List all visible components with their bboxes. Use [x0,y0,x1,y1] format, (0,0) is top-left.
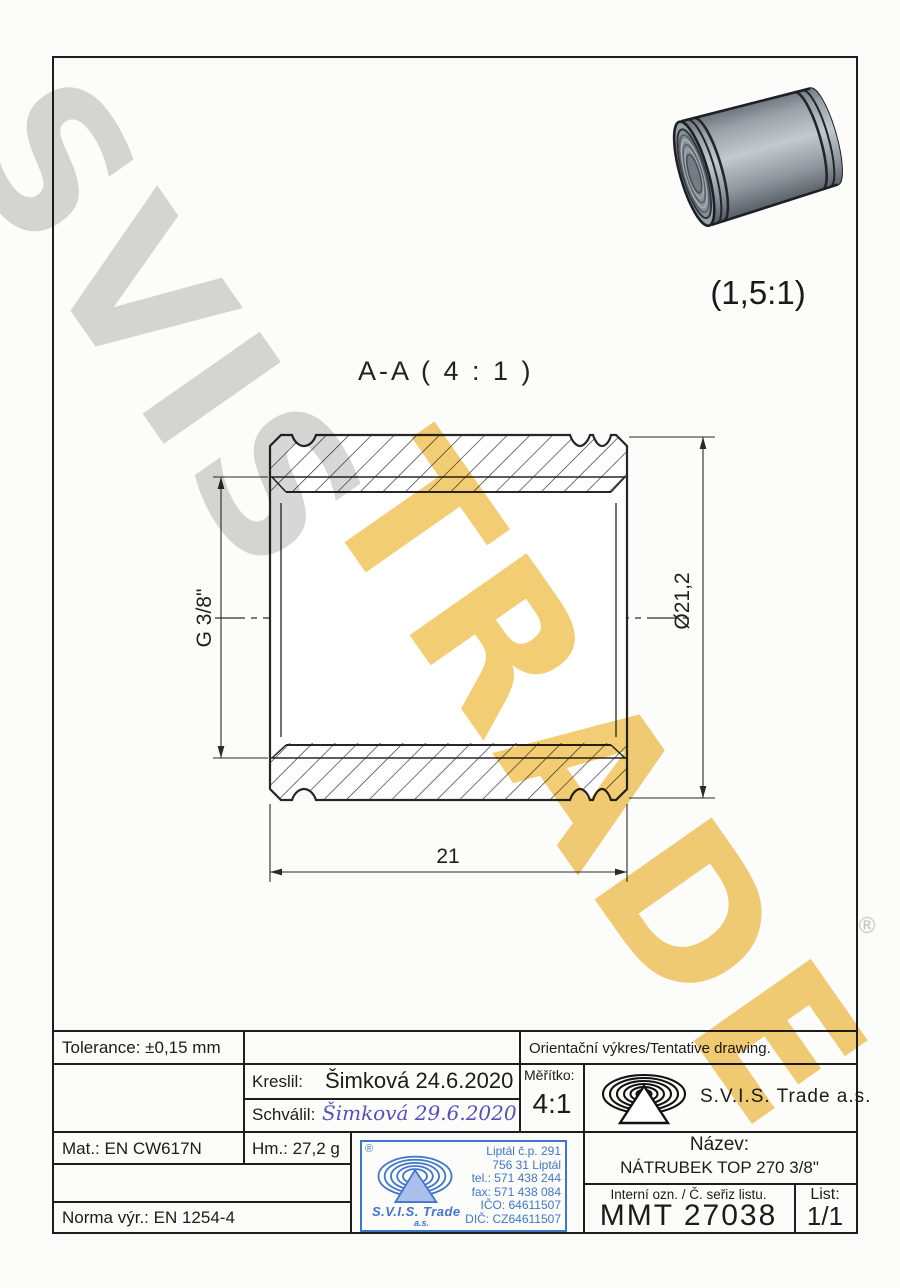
stamp-address: Liptál č.p. 291 756 31 Liptál tel.: 571 … [465,1145,561,1227]
frame-left [52,56,54,1234]
watermark-registered-icon: ® [856,916,878,938]
titleblock-line [350,1131,352,1232]
drawing-sheet: { "watermark": { "word1": "SVIS", "word2… [0,0,900,1288]
stamp-company-suffix: a.s. [414,1218,429,1228]
titleblock-line [52,1163,352,1165]
meritko-label: Měřítko: [524,1067,575,1083]
titleblock-line [52,1201,352,1203]
nazev-value: NÁTRUBEK TOP 270 3/8" [583,1158,856,1178]
tentative-text: Orientační výkres/Tentative drawing. [529,1040,771,1057]
norm-text: Norma výr.: EN 1254-4 [62,1208,235,1228]
company-logo [598,1069,690,1127]
interni-value: MMT 27038 [583,1199,794,1233]
stamp-address-line: IČO: 64611507 [465,1199,561,1213]
company-name: S.V.I.S. Trade a.s. [700,1086,871,1108]
section-label: A-A ( 4 : 1 ) [358,356,534,387]
titleblock-line [52,1030,858,1032]
titleblock-line [243,1030,245,1165]
kreslil-value: Šimková 24.6.2020 [325,1068,513,1094]
stamp-logo [374,1152,456,1204]
dim-length-text: 21 [436,845,459,868]
dim-diameter-text: Ø21,2 [671,572,694,629]
nazev-label: Název: [583,1134,856,1156]
section-view: G 3/8" Ø21,2 21 [165,415,735,900]
company-stamp: ® S.V.I.S. Trade a.s. Liptál č.p. 291 75… [360,1140,567,1232]
stamp-address-line: Liptál č.p. 291 [465,1145,561,1159]
detail-scale-label: (1,5:1) [672,274,844,312]
material-text: Mat.: EN CW617N [62,1139,202,1159]
list-value: 1/1 [794,1201,856,1232]
dimension-length [270,804,627,882]
titleblock-line [583,1183,856,1185]
tolerance-text: Tolerance: ±0,15 mm [62,1038,221,1058]
stamp-address-line: DIČ: CZ64611507 [465,1213,561,1227]
stamp-company: S.V.I.S. Trade [372,1204,461,1219]
titleblock-line [52,1063,858,1065]
registered-icon: ® [365,1143,373,1155]
titleblock-line [52,1131,858,1133]
stamp-address-line: 756 31 Liptál [465,1159,561,1173]
schvalil-signature: Šimková 29.6.2020 [322,1101,517,1125]
schvalil-label: Schválil: [252,1105,315,1125]
kreslil-label: Kreslil: [252,1072,303,1092]
weight-text: Hm.: 27,2 g [252,1139,340,1159]
stamp-address-line: tel.: 571 438 244 [465,1172,561,1186]
meritko-value: 4:1 [521,1088,583,1120]
titleblock-line [243,1098,521,1100]
dim-thread-text: G 3/8" [193,589,216,648]
detail-3d-view [645,58,860,263]
